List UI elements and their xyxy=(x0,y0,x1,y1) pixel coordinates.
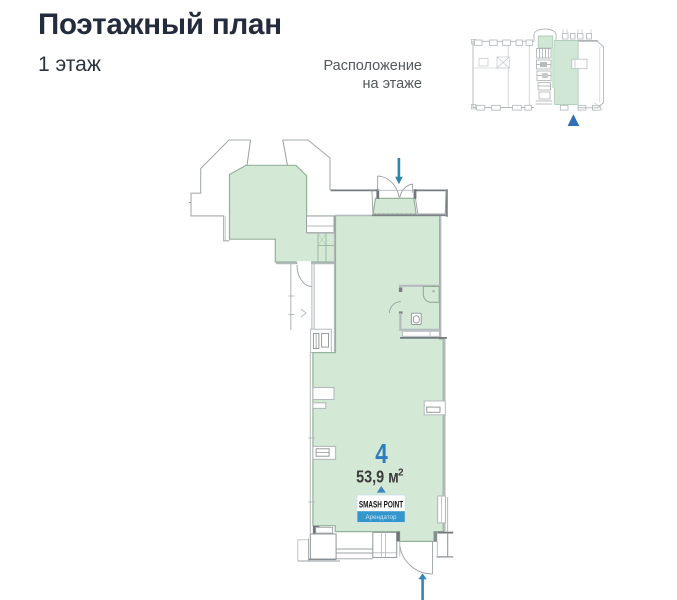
svg-text:SMASH POINT: SMASH POINT xyxy=(359,499,403,510)
svg-text:Арендатор: Арендатор xyxy=(366,514,398,521)
svg-text:53,9 м: 53,9 м xyxy=(356,467,399,487)
svg-text:2: 2 xyxy=(398,468,404,479)
svg-text:4: 4 xyxy=(375,439,388,470)
